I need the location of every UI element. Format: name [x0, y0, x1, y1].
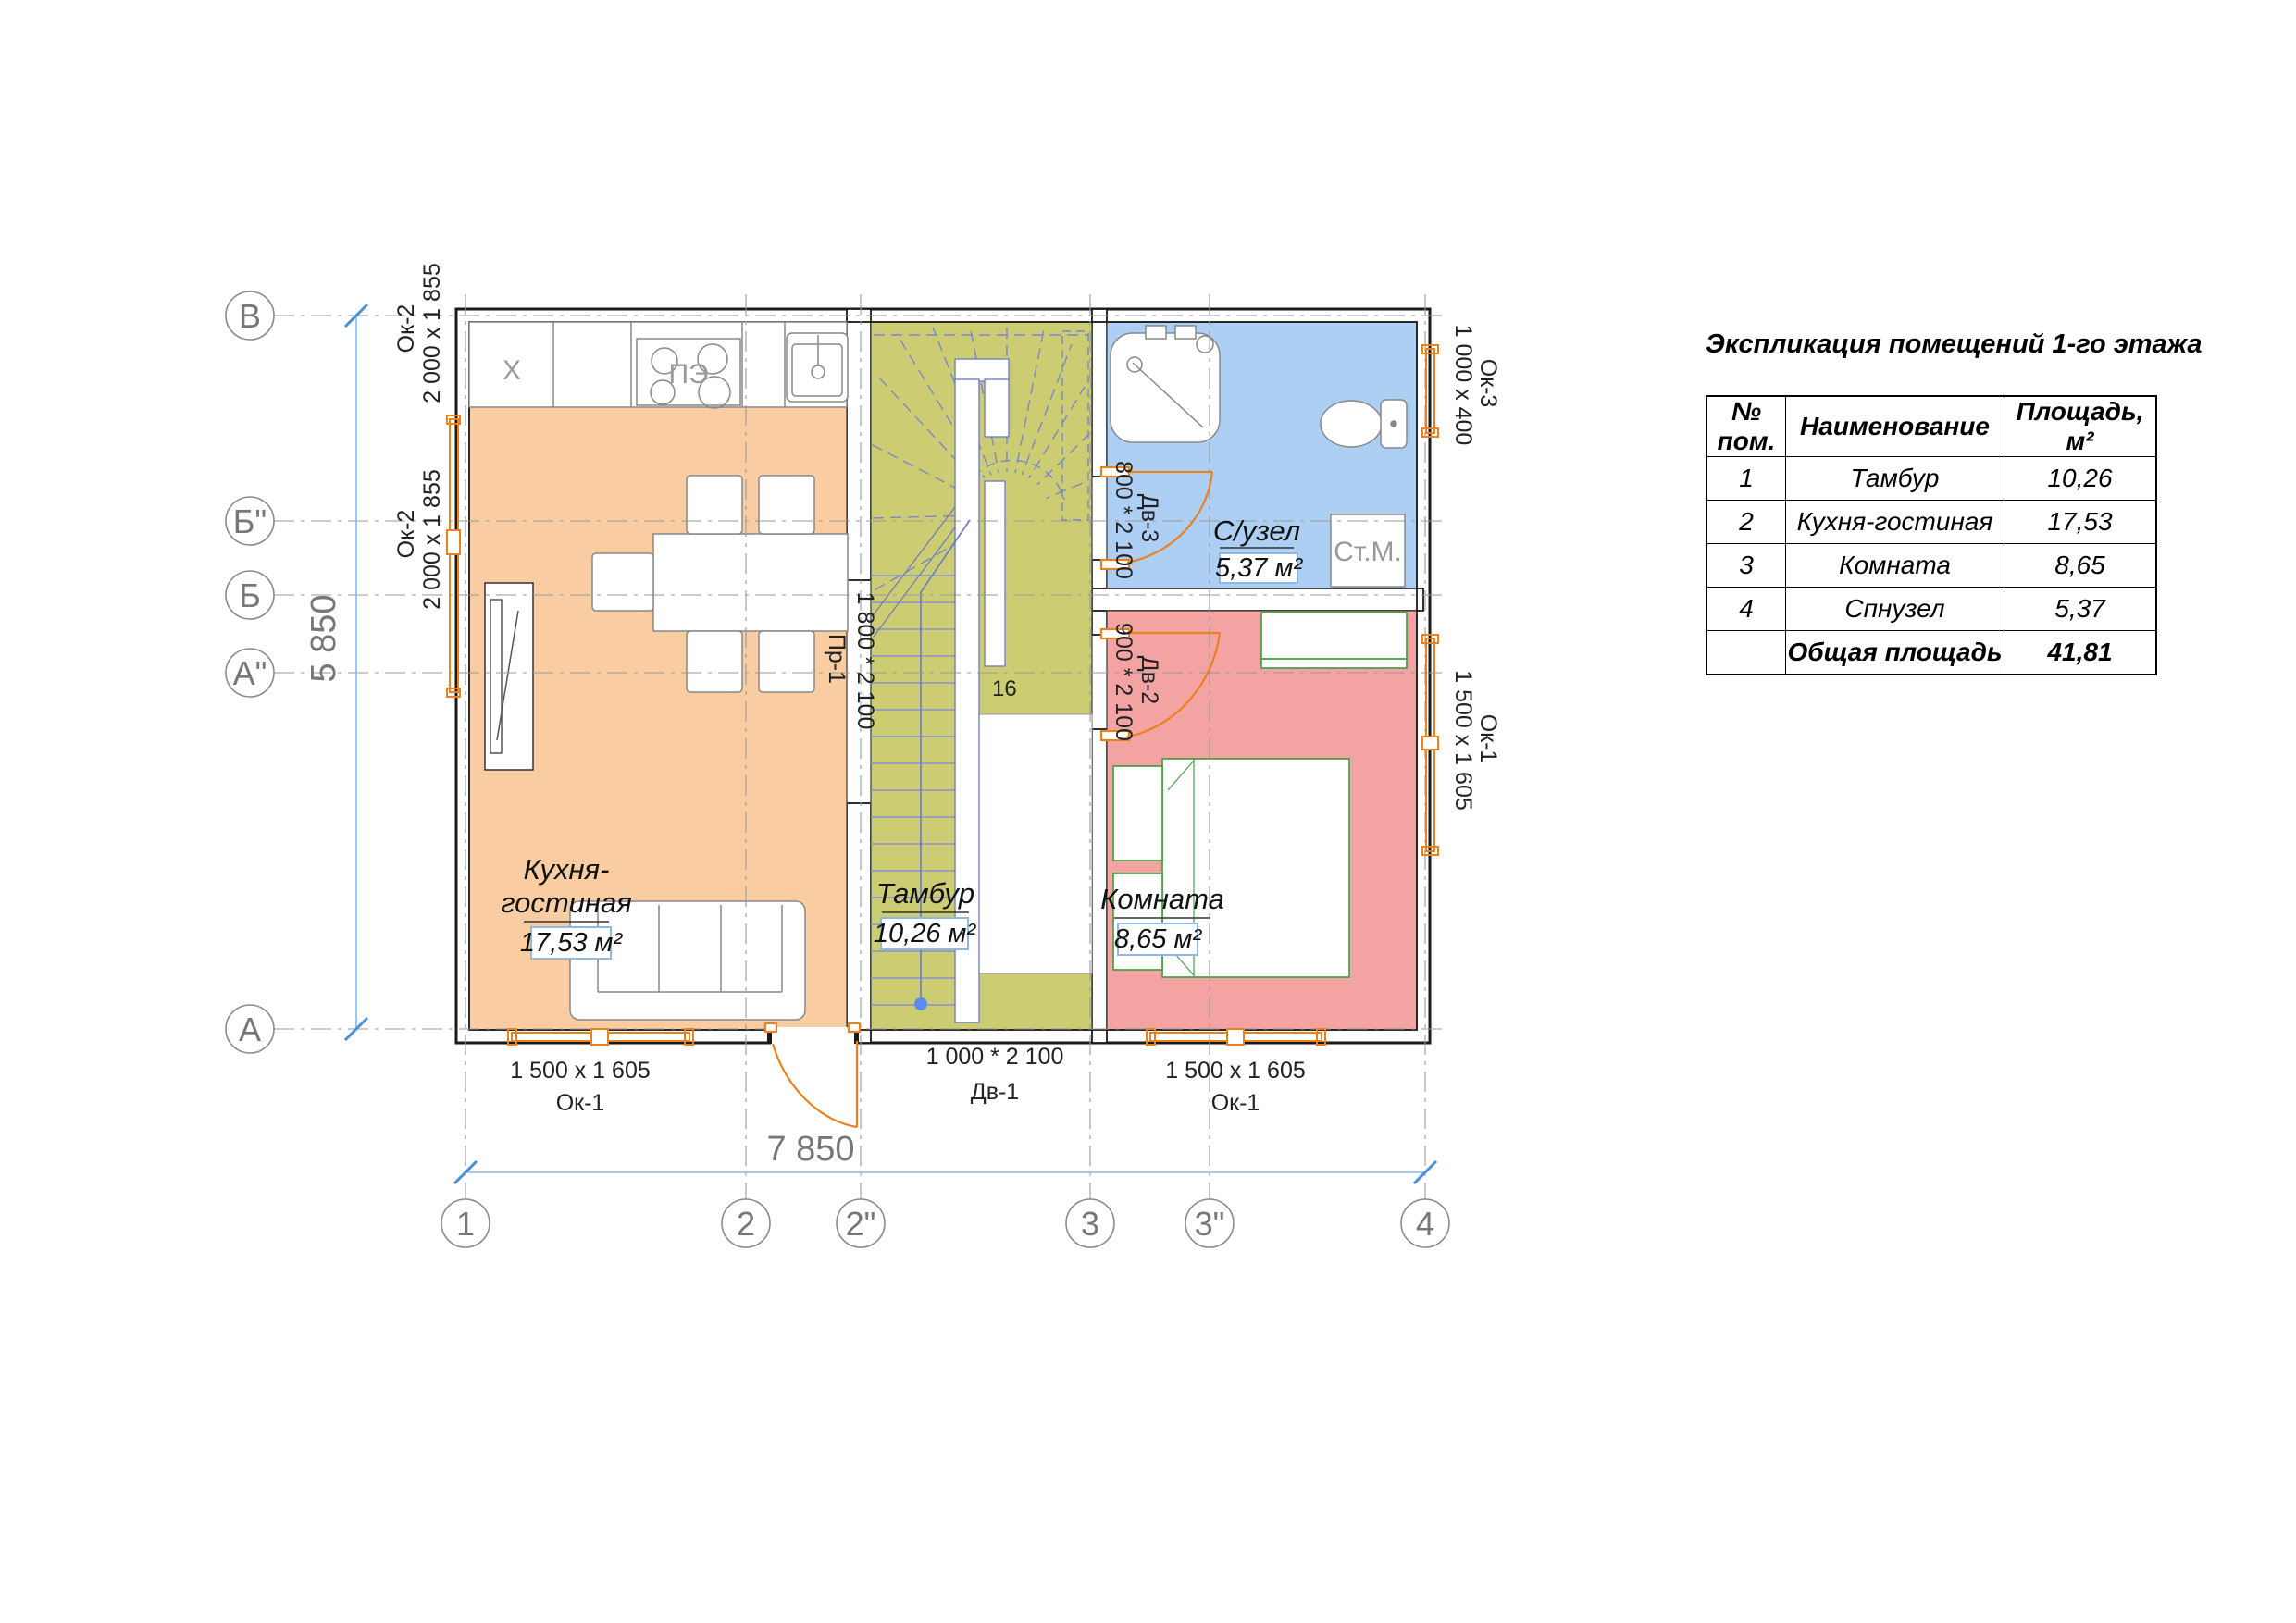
- room-area: 8,65: [2004, 544, 2157, 588]
- grid-col-4: 4: [1416, 1205, 1434, 1243]
- window-ok2-lower-size: 2 000 x 1 855: [419, 469, 445, 610]
- room-area: 5,37: [2004, 588, 2157, 631]
- kitchen-name-2: гостиная: [501, 886, 632, 919]
- sofa: [570, 901, 805, 1020]
- wall-kitchen-tambour-top: [847, 309, 871, 580]
- door-dv3-label: Дв-3: [1136, 494, 1162, 542]
- floor-plan-drawing: 16: [0, 0, 2296, 1623]
- window-ok1-br-label: Ок-1: [1211, 1090, 1260, 1116]
- chair: [759, 631, 814, 692]
- window-ok1-right-label: Ок-1: [1475, 714, 1501, 763]
- grid-row-b2: Б": [233, 502, 267, 540]
- explication-table: № пом. Наименование Площадь, м² 1 Тамбур…: [1706, 395, 2157, 675]
- window-ok3-label: Ок-3: [1475, 359, 1501, 408]
- shower-cabin: [1111, 333, 1220, 442]
- window-ok1-right-size: 1 500 x 1 605: [1450, 670, 1476, 811]
- wall-tambour-right-1: [1092, 309, 1107, 477]
- bedroom-area: 8,65 м²: [1114, 924, 1202, 954]
- wall-bath-bedroom: [1092, 588, 1423, 611]
- header-room-number: № пом.: [1706, 396, 1786, 457]
- door-swing-dv1: [773, 1044, 857, 1127]
- door-dv1-size: 1 000 * 2 100: [926, 1044, 1064, 1070]
- total-area: 41,81: [2004, 631, 2157, 675]
- washer-label: Ст.М.: [1334, 537, 1402, 567]
- nightstand: [1113, 766, 1162, 861]
- grid-col-1: 1: [456, 1205, 475, 1243]
- opening-pr1-label: Пр-1: [824, 634, 850, 684]
- total-label: Общая площадь: [1786, 631, 2004, 675]
- grid-col-3s: 3": [1195, 1205, 1225, 1243]
- room-name: Кухня-гостиная: [1786, 501, 2004, 544]
- stair-stringer: [955, 359, 1009, 381]
- window-ok1-br-size: 1 500 x 1 605: [1165, 1058, 1306, 1084]
- table-row: 4 Спнузел 5,37: [1706, 588, 2156, 631]
- grid-col-3: 3: [1081, 1205, 1099, 1243]
- bathroom-name: С/узел: [1213, 514, 1300, 547]
- tv-unit: [485, 583, 533, 770]
- header-room-name: Наименование: [1786, 396, 2004, 457]
- door-dv3-size: 800 * 2 100: [1111, 461, 1136, 579]
- room-number: 4: [1706, 588, 1786, 631]
- window-ok3-size: 1 000 x 400: [1450, 325, 1476, 446]
- window-ok2-lower-label: Ок-2: [393, 510, 419, 559]
- chair: [592, 553, 653, 611]
- grid-col-2s: 2": [846, 1205, 876, 1243]
- stair-start-dot: [914, 997, 927, 1010]
- room-number: 2: [1706, 501, 1786, 544]
- kitchen-name-1: Кухня-: [524, 853, 610, 886]
- total-empty-cell: [1706, 631, 1786, 675]
- wall-kitchen-tambour-bottom: [847, 803, 871, 1043]
- kitchen-area: 17,53 м²: [520, 928, 624, 958]
- grid-row-b: Б: [239, 576, 261, 614]
- stove-label: ПЭ: [668, 359, 708, 390]
- bedroom-name: Комната: [1100, 883, 1224, 915]
- header-room-area: Площадь, м²: [2004, 396, 2157, 457]
- fridge-label: X: [503, 355, 521, 386]
- table-total-row: Общая площадь 41,81: [1706, 631, 2156, 675]
- grid-row-a2: А": [233, 654, 267, 692]
- floor-plan-page: { "explication": { "title": "Экспликация…: [0, 0, 2296, 1623]
- room-number: 1: [1706, 457, 1786, 501]
- room-number: 3: [1706, 544, 1786, 588]
- room-name: Комната: [1786, 544, 2004, 588]
- door-dv1-label: Дв-1: [971, 1079, 1019, 1105]
- table-header-row: № пом. Наименование Площадь, м²: [1706, 396, 2156, 457]
- toilet: [1321, 401, 1382, 447]
- wardrobe: [1261, 613, 1407, 668]
- table-row: 2 Кухня-гостиная 17,53: [1706, 501, 2156, 544]
- grid-col-2: 2: [737, 1205, 755, 1243]
- chair: [687, 476, 742, 534]
- dimension-height: 5 850: [304, 594, 343, 682]
- grid-row-a: А: [239, 1010, 261, 1048]
- room-area: 10,26: [2004, 457, 2157, 501]
- tambour-area: 10,26 м²: [874, 919, 977, 948]
- room-name: Тамбур: [1786, 457, 2004, 501]
- table-row: 3 Комната 8,65: [1706, 544, 2156, 588]
- door-dv2-size: 900 * 2 100: [1111, 623, 1136, 741]
- window-ok1-bl-label: Ок-1: [556, 1090, 605, 1116]
- tambour-name: Тамбур: [876, 877, 974, 910]
- room-name: Спнузел: [1786, 588, 2004, 631]
- dimension-width: 7 850: [766, 1130, 854, 1169]
- chair: [687, 631, 742, 692]
- explication-block: Экспликация помещений 1-го этажа № пом. …: [1706, 329, 2152, 675]
- dining-table: [653, 534, 848, 631]
- room-area: 17,53: [2004, 501, 2157, 544]
- window-ok2-upper-size: 2 000 x 1 855: [419, 263, 445, 403]
- tambour-floor-cutout: [974, 714, 1092, 973]
- chair: [759, 476, 814, 534]
- table-row: 1 Тамбур 10,26: [1706, 457, 2156, 501]
- kitchen-sink: [787, 333, 848, 402]
- bathroom-area: 5,37 м²: [1215, 553, 1303, 583]
- stair-steps-count: 16: [992, 676, 1017, 701]
- opening-pr1-size: 1 800 * 2 100: [852, 592, 878, 730]
- grid-row-v: В: [239, 297, 261, 335]
- door-dv2-label: Дв-2: [1136, 656, 1162, 704]
- explication-title: Экспликация помещений 1-го этажа: [1706, 329, 2152, 360]
- window-ok1-bl-size: 1 500 x 1 605: [510, 1058, 651, 1084]
- window-ok2-upper-label: Ок-2: [393, 304, 419, 353]
